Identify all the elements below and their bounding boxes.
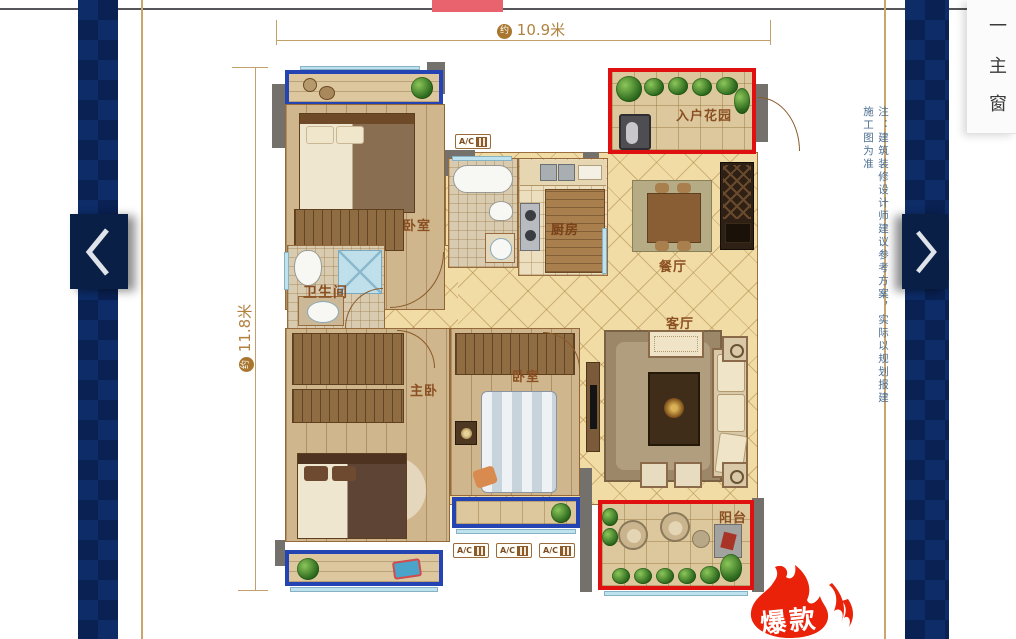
picnic-blanket xyxy=(392,558,422,580)
dim-width-tick-right xyxy=(770,20,771,45)
plant xyxy=(700,566,720,584)
plant xyxy=(616,76,642,102)
small-table xyxy=(692,530,710,548)
side-table-lamp xyxy=(730,470,744,484)
ac-callout-2: A/C xyxy=(496,543,532,558)
toilet xyxy=(489,201,513,221)
sink xyxy=(307,301,339,323)
window xyxy=(300,66,420,70)
ottoman-stool xyxy=(640,462,668,488)
dim-width-label: 约 10.9米 xyxy=(497,19,565,40)
wardrobe xyxy=(292,389,404,423)
round-chair xyxy=(655,507,695,547)
bed xyxy=(297,453,407,539)
side-table xyxy=(722,462,748,488)
lamp xyxy=(461,428,472,439)
cabinet-handle xyxy=(626,122,638,144)
plant xyxy=(668,77,688,95)
room-label-bathroom: 卫生间 xyxy=(303,282,348,302)
window xyxy=(284,252,289,290)
ac-unit-icon xyxy=(517,546,528,556)
hot-item-badge-label: 爆款 xyxy=(758,598,820,639)
window xyxy=(456,529,576,534)
mid-balcony-strip xyxy=(452,497,580,528)
window xyxy=(602,228,607,274)
window xyxy=(290,587,438,592)
dish-rack xyxy=(578,165,602,180)
round-chair xyxy=(618,520,648,550)
top-balcony-strip xyxy=(285,70,443,106)
dim-height-tick-bottom xyxy=(238,590,268,591)
bed xyxy=(299,113,415,213)
bed-headboard xyxy=(298,454,406,464)
balcony-chair xyxy=(303,78,317,92)
loveseat-sofa xyxy=(648,330,704,358)
master-balcony-strip xyxy=(285,550,443,586)
tray-item xyxy=(720,532,736,551)
dim-height-value: 11.8米 xyxy=(236,304,254,352)
floorplan-image: 约 10.9米 约 11.8米 xyxy=(0,0,1016,639)
bed-pillow xyxy=(336,126,364,144)
plant xyxy=(678,568,696,584)
room-bath-top xyxy=(448,158,518,268)
dim-height-line xyxy=(255,67,256,590)
ac-label: A/C xyxy=(457,546,472,555)
room-label-balcony: 阳台 xyxy=(719,507,747,526)
ottoman-stool xyxy=(674,462,702,488)
tv-screen xyxy=(590,385,597,429)
main-sofa xyxy=(712,348,748,478)
ac-label: A/C xyxy=(459,137,474,146)
wine-shelf xyxy=(725,223,751,243)
dining-chair xyxy=(655,241,669,251)
sink xyxy=(490,238,512,260)
wine-rack-lattice xyxy=(723,165,751,219)
tray-table xyxy=(714,524,742,558)
dim-width-value: 10.9米 xyxy=(517,21,565,39)
ac-unit-icon xyxy=(474,546,485,556)
room-label-master: 主卧 xyxy=(410,380,438,399)
plant xyxy=(634,568,652,584)
ac-callout-1: A/C xyxy=(453,543,489,558)
bed-headboard xyxy=(300,114,414,124)
plant xyxy=(734,88,750,114)
shoe-cabinet xyxy=(619,114,651,150)
chair-cushion xyxy=(627,529,641,543)
dining-chair xyxy=(677,241,691,251)
plant xyxy=(612,568,630,584)
floorplan-viewer-screen: 一 主 窗 注：建筑装修设计师建议参考方案，实际以规划报建施工图为准 约 10.… xyxy=(0,0,1016,639)
ac-unit-icon xyxy=(560,546,571,556)
side-table xyxy=(722,336,748,362)
ac-label: A/C xyxy=(500,546,515,555)
ac-callout-3: A/C xyxy=(539,543,575,558)
room-label-dining: 餐厅 xyxy=(659,256,687,275)
ac-label: A/C xyxy=(543,546,558,555)
dim-width-line xyxy=(276,40,771,41)
plant xyxy=(644,78,664,96)
bed-pillow xyxy=(472,465,498,489)
room-label-entry-garden: 入户花园 xyxy=(676,105,732,124)
wardrobe xyxy=(292,333,404,385)
wall-segment xyxy=(580,468,592,592)
dim-height-tick-top xyxy=(232,67,268,68)
sink-counter xyxy=(485,233,515,263)
bed xyxy=(481,391,557,493)
entry-door-arc xyxy=(758,97,800,151)
ac-unit-icon xyxy=(476,137,487,147)
table-centerpiece xyxy=(664,398,684,418)
plant xyxy=(720,554,742,582)
burner xyxy=(525,230,536,241)
dining-rug xyxy=(632,180,712,252)
dim-width-approx-circle: 约 xyxy=(497,24,512,39)
plant xyxy=(297,558,319,580)
sofa-cushion xyxy=(717,394,745,432)
toilet xyxy=(294,250,322,286)
plant xyxy=(692,78,712,96)
room-kitchen xyxy=(518,158,608,276)
bed-pillow xyxy=(306,126,334,144)
dim-height-approx-circle: 约 xyxy=(239,357,254,372)
side-table-lamp xyxy=(730,344,744,358)
plant xyxy=(602,528,618,546)
balcony-chair xyxy=(319,86,335,100)
bathtub xyxy=(453,165,513,193)
plant xyxy=(411,77,433,99)
kitchen-sink xyxy=(558,164,575,181)
sofa-tufting xyxy=(654,336,698,352)
plant xyxy=(656,568,674,584)
room-label-bedroom-mid: 卧室 xyxy=(512,366,540,385)
plant xyxy=(602,508,618,526)
wall-segment xyxy=(275,540,285,566)
bed-pillow xyxy=(332,466,356,481)
window xyxy=(604,591,748,596)
kitchen-sink xyxy=(540,164,557,181)
dining-chair xyxy=(655,183,669,193)
wine-cabinet xyxy=(720,162,754,250)
wall-segment xyxy=(272,84,286,148)
burner xyxy=(525,210,536,221)
dim-height-label: 约 11.8米 xyxy=(234,304,255,372)
tv-stand xyxy=(586,362,600,452)
stove xyxy=(520,203,540,251)
dining-chair xyxy=(677,183,691,193)
dining-table xyxy=(647,193,701,243)
plant xyxy=(551,503,571,523)
bed-pillow xyxy=(304,466,328,481)
nightstand xyxy=(455,421,477,445)
room-label-bedroom-top: 卧室 xyxy=(403,215,431,234)
coffee-table xyxy=(648,372,700,446)
dim-width-tick-left xyxy=(276,20,277,45)
room-label-kitchen: 厨房 xyxy=(551,219,579,238)
ac-callout-top: A/C xyxy=(455,134,491,149)
kitchen-counter xyxy=(520,160,606,186)
window xyxy=(452,156,512,161)
chair-cushion xyxy=(666,519,684,537)
